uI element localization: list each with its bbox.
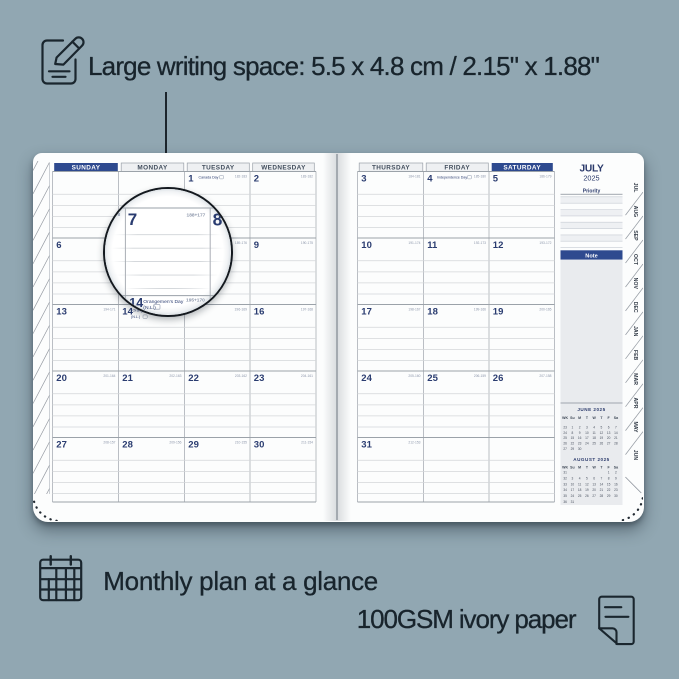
svg-text:30: 30 [254, 440, 265, 451]
svg-text:189-176: 189-176 [235, 241, 247, 245]
svg-text:Su: Su [570, 416, 574, 420]
svg-text:28: 28 [122, 440, 133, 451]
svg-text:2: 2 [579, 425, 581, 429]
svg-text:23: 23 [254, 373, 265, 384]
svg-text:28: 28 [600, 494, 604, 498]
svg-text:22: 22 [188, 373, 199, 384]
svg-text:5: 5 [601, 425, 603, 429]
svg-text:29: 29 [188, 440, 199, 451]
svg-text:JUN: JUN [632, 450, 638, 461]
svg-text:210-155: 210-155 [235, 441, 247, 445]
svg-text:21: 21 [614, 436, 618, 440]
svg-text:18: 18 [427, 307, 438, 318]
svg-text:201-164: 201-164 [103, 374, 115, 378]
svg-text:22: 22 [571, 441, 575, 445]
svg-text:27: 27 [607, 441, 611, 445]
svg-text:211-154: 211-154 [301, 441, 313, 445]
svg-text:11: 11 [578, 482, 582, 486]
svg-text:4: 4 [579, 477, 581, 481]
svg-text:24: 24 [361, 373, 372, 384]
svg-text:6: 6 [56, 240, 61, 251]
svg-text:10: 10 [361, 240, 372, 251]
svg-text:Priority: Priority [583, 189, 601, 195]
svg-text:AUGUST 2025: AUGUST 2025 [573, 457, 609, 462]
svg-text:MAY: MAY [632, 421, 638, 433]
svg-text:192-173: 192-173 [474, 241, 486, 245]
svg-text:3: 3 [572, 477, 574, 481]
svg-text:SATURDAY: SATURDAY [503, 164, 541, 171]
svg-text:31: 31 [563, 471, 567, 475]
svg-text:182-183: 182-183 [235, 175, 247, 179]
svg-text:32: 32 [563, 477, 567, 481]
svg-text:28: 28 [614, 441, 618, 445]
svg-text:191-174: 191-174 [408, 241, 420, 245]
svg-text:JUL: JUL [632, 183, 638, 194]
svg-text:11: 11 [592, 431, 596, 435]
svg-text:22: 22 [607, 488, 611, 492]
svg-text:M: M [578, 465, 581, 469]
svg-text:6: 6 [608, 425, 610, 429]
svg-text:10: 10 [571, 482, 575, 486]
svg-text:13: 13 [56, 307, 67, 318]
svg-text:2: 2 [615, 471, 617, 475]
svg-text:Independence Day: Independence Day [437, 176, 467, 180]
svg-text:2025: 2025 [583, 174, 599, 183]
svg-text:12: 12 [585, 482, 589, 486]
svg-text:1: 1 [608, 471, 610, 475]
svg-text:24: 24 [571, 494, 575, 498]
svg-text:4: 4 [593, 425, 595, 429]
svg-text:202-163: 202-163 [169, 374, 181, 378]
svg-text:197-168: 197-168 [301, 308, 313, 312]
svg-text:7: 7 [601, 477, 603, 481]
svg-text:212-153: 212-153 [408, 441, 420, 445]
svg-text:15: 15 [607, 482, 611, 486]
svg-text:209-156: 209-156 [169, 441, 181, 445]
svg-text:26: 26 [585, 494, 589, 498]
svg-text:(N.L.): (N.L.) [131, 315, 140, 319]
svg-text:14: 14 [614, 431, 618, 435]
svg-text:15: 15 [571, 436, 575, 440]
svg-text:Note: Note [585, 253, 597, 259]
svg-text:26: 26 [600, 441, 604, 445]
svg-text:27: 27 [592, 494, 596, 498]
svg-text:3: 3 [586, 425, 588, 429]
svg-text:16: 16 [254, 307, 265, 318]
svg-text:27: 27 [56, 440, 67, 451]
svg-text:WEDNESDAY: WEDNESDAY [261, 164, 306, 171]
svg-text:AUG: AUG [632, 206, 638, 218]
svg-text:WK: WK [562, 465, 568, 469]
svg-text:WK: WK [562, 416, 568, 420]
svg-text:186-179: 186-179 [539, 175, 551, 179]
svg-text:30: 30 [614, 494, 618, 498]
svg-text:19: 19 [600, 436, 604, 440]
svg-text:206-159: 206-159 [474, 374, 486, 378]
svg-text:SEP: SEP [632, 230, 638, 241]
svg-text:M: M [578, 416, 581, 420]
svg-text:17: 17 [361, 307, 372, 318]
svg-text:24: 24 [563, 431, 567, 435]
svg-text:MAR: MAR [632, 373, 638, 385]
svg-text:3: 3 [361, 174, 366, 185]
svg-text:8: 8 [608, 477, 610, 481]
svg-text:14: 14 [600, 482, 604, 486]
svg-text:36: 36 [563, 500, 567, 504]
svg-text:27: 27 [563, 447, 567, 451]
svg-text:26: 26 [493, 373, 504, 384]
svg-text:13: 13 [607, 431, 611, 435]
svg-text:20: 20 [56, 373, 67, 384]
svg-text:5: 5 [493, 174, 499, 185]
svg-text:29: 29 [571, 447, 575, 451]
svg-text:193-172: 193-172 [539, 241, 551, 245]
svg-text:19: 19 [585, 488, 589, 492]
svg-text:25: 25 [563, 436, 567, 440]
svg-text:30: 30 [578, 447, 582, 451]
svg-text:9: 9 [254, 240, 259, 251]
svg-text:25: 25 [592, 441, 596, 445]
svg-text:8: 8 [572, 431, 574, 435]
svg-text:7: 7 [128, 210, 137, 229]
svg-text:16: 16 [578, 436, 582, 440]
svg-text:Su: Su [570, 465, 574, 469]
svg-text:23: 23 [578, 441, 582, 445]
svg-text:9: 9 [615, 477, 617, 481]
svg-text:25: 25 [427, 373, 438, 384]
svg-text:35: 35 [563, 494, 567, 498]
svg-text:26: 26 [563, 441, 567, 445]
svg-text:1: 1 [572, 425, 574, 429]
svg-text:20: 20 [592, 488, 596, 492]
svg-text:10: 10 [585, 431, 589, 435]
svg-text:Sa: Sa [614, 416, 618, 420]
svg-text:17: 17 [585, 436, 589, 440]
svg-text:29: 29 [607, 494, 611, 498]
svg-text:196-169: 196-169 [235, 308, 248, 312]
svg-text:JAN: JAN [632, 326, 638, 337]
svg-text:17: 17 [571, 488, 575, 492]
svg-text:34: 34 [563, 488, 567, 492]
svg-text:12: 12 [493, 240, 504, 251]
svg-text:21: 21 [122, 373, 133, 384]
svg-text:185-180: 185-180 [474, 175, 486, 179]
svg-text:21: 21 [600, 488, 604, 492]
svg-text:1: 1 [188, 174, 194, 185]
svg-text:190-175: 190-175 [301, 241, 313, 245]
svg-text:2: 2 [254, 174, 259, 185]
svg-text:FEB: FEB [632, 350, 638, 361]
svg-text:207-158: 207-158 [539, 374, 551, 378]
svg-text:200-165: 200-165 [539, 308, 551, 312]
svg-text:JUNE 2025: JUNE 2025 [577, 407, 605, 412]
svg-text:20: 20 [607, 436, 611, 440]
svg-text:11: 11 [427, 240, 438, 251]
svg-text:4: 4 [427, 174, 433, 185]
svg-text:THURSDAY: THURSDAY [372, 164, 410, 171]
svg-text:203-162: 203-162 [235, 374, 247, 378]
svg-text:33: 33 [563, 482, 567, 486]
svg-text:MONDAY: MONDAY [137, 164, 168, 171]
svg-text:FRIDAY: FRIDAY [444, 164, 470, 171]
svg-text:SUNDAY: SUNDAY [72, 164, 101, 171]
svg-text:NOV: NOV [632, 278, 638, 290]
svg-text:183-182: 183-182 [301, 175, 313, 179]
svg-text:188+177: 188+177 [187, 213, 206, 219]
svg-text:9: 9 [579, 431, 581, 435]
svg-text:23: 23 [614, 488, 618, 492]
svg-text:24: 24 [585, 441, 589, 445]
svg-text:16: 16 [614, 482, 618, 486]
svg-text:205-160: 205-160 [408, 374, 420, 378]
svg-text:199-166: 199-166 [474, 308, 486, 312]
svg-text:31: 31 [361, 440, 372, 451]
svg-text:23: 23 [563, 425, 567, 429]
svg-text:5: 5 [586, 477, 588, 481]
svg-text:208-157: 208-157 [103, 441, 115, 445]
svg-text:Canada Day: Canada Day [199, 176, 219, 180]
svg-text:Sa: Sa [614, 465, 618, 469]
svg-text:184-181: 184-181 [408, 175, 420, 179]
svg-text:OCT: OCT [632, 254, 638, 266]
svg-text:12: 12 [600, 431, 604, 435]
svg-text:6: 6 [593, 477, 595, 481]
svg-text:7: 7 [615, 425, 617, 429]
svg-text:204-161: 204-161 [301, 374, 313, 378]
svg-text:194-171: 194-171 [103, 308, 115, 312]
svg-text:13: 13 [592, 482, 596, 486]
svg-text:31: 31 [571, 500, 575, 504]
svg-text:19: 19 [493, 307, 504, 318]
svg-text:18: 18 [592, 436, 596, 440]
svg-text:18: 18 [578, 488, 582, 492]
svg-text:198-167: 198-167 [408, 308, 420, 312]
svg-text:195+170: 195+170 [186, 298, 205, 304]
svg-text:APR: APR [632, 398, 638, 409]
svg-text:25: 25 [578, 494, 582, 498]
svg-text:DEC: DEC [632, 302, 638, 313]
svg-text:TUESDAY: TUESDAY [202, 164, 235, 171]
svg-text:(N.L.): (N.L.) [143, 305, 156, 311]
